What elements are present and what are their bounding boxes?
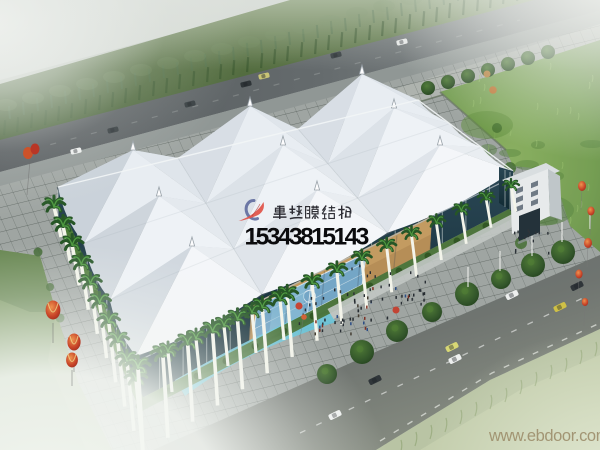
svg-text:www.ebdoor.com: www.ebdoor.com [488, 427, 600, 445]
svg-text:15343815143: 15343815143 [245, 224, 369, 251]
